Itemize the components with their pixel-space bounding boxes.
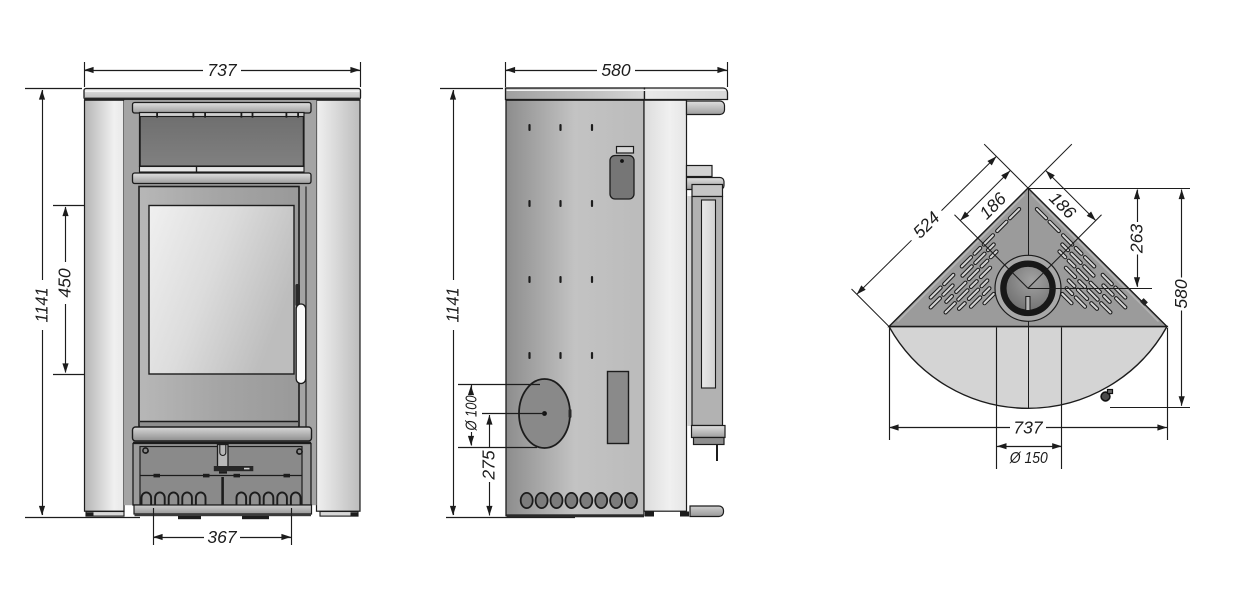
svg-text:Ø 100: Ø 100 [464, 395, 481, 431]
svg-text:275: 275 [479, 450, 499, 480]
svg-text:Ø 150: Ø 150 [1009, 450, 1048, 467]
svg-text:737: 737 [1013, 418, 1043, 438]
svg-text:367: 367 [207, 527, 237, 547]
svg-text:263: 263 [1127, 224, 1147, 254]
svg-text:1141: 1141 [443, 288, 463, 323]
svg-text:524: 524 [909, 207, 944, 242]
svg-text:450: 450 [55, 268, 75, 297]
svg-text:580: 580 [601, 60, 630, 80]
svg-text:580: 580 [1171, 279, 1191, 308]
svg-text:737: 737 [207, 60, 237, 80]
svg-text:1141: 1141 [32, 288, 52, 323]
